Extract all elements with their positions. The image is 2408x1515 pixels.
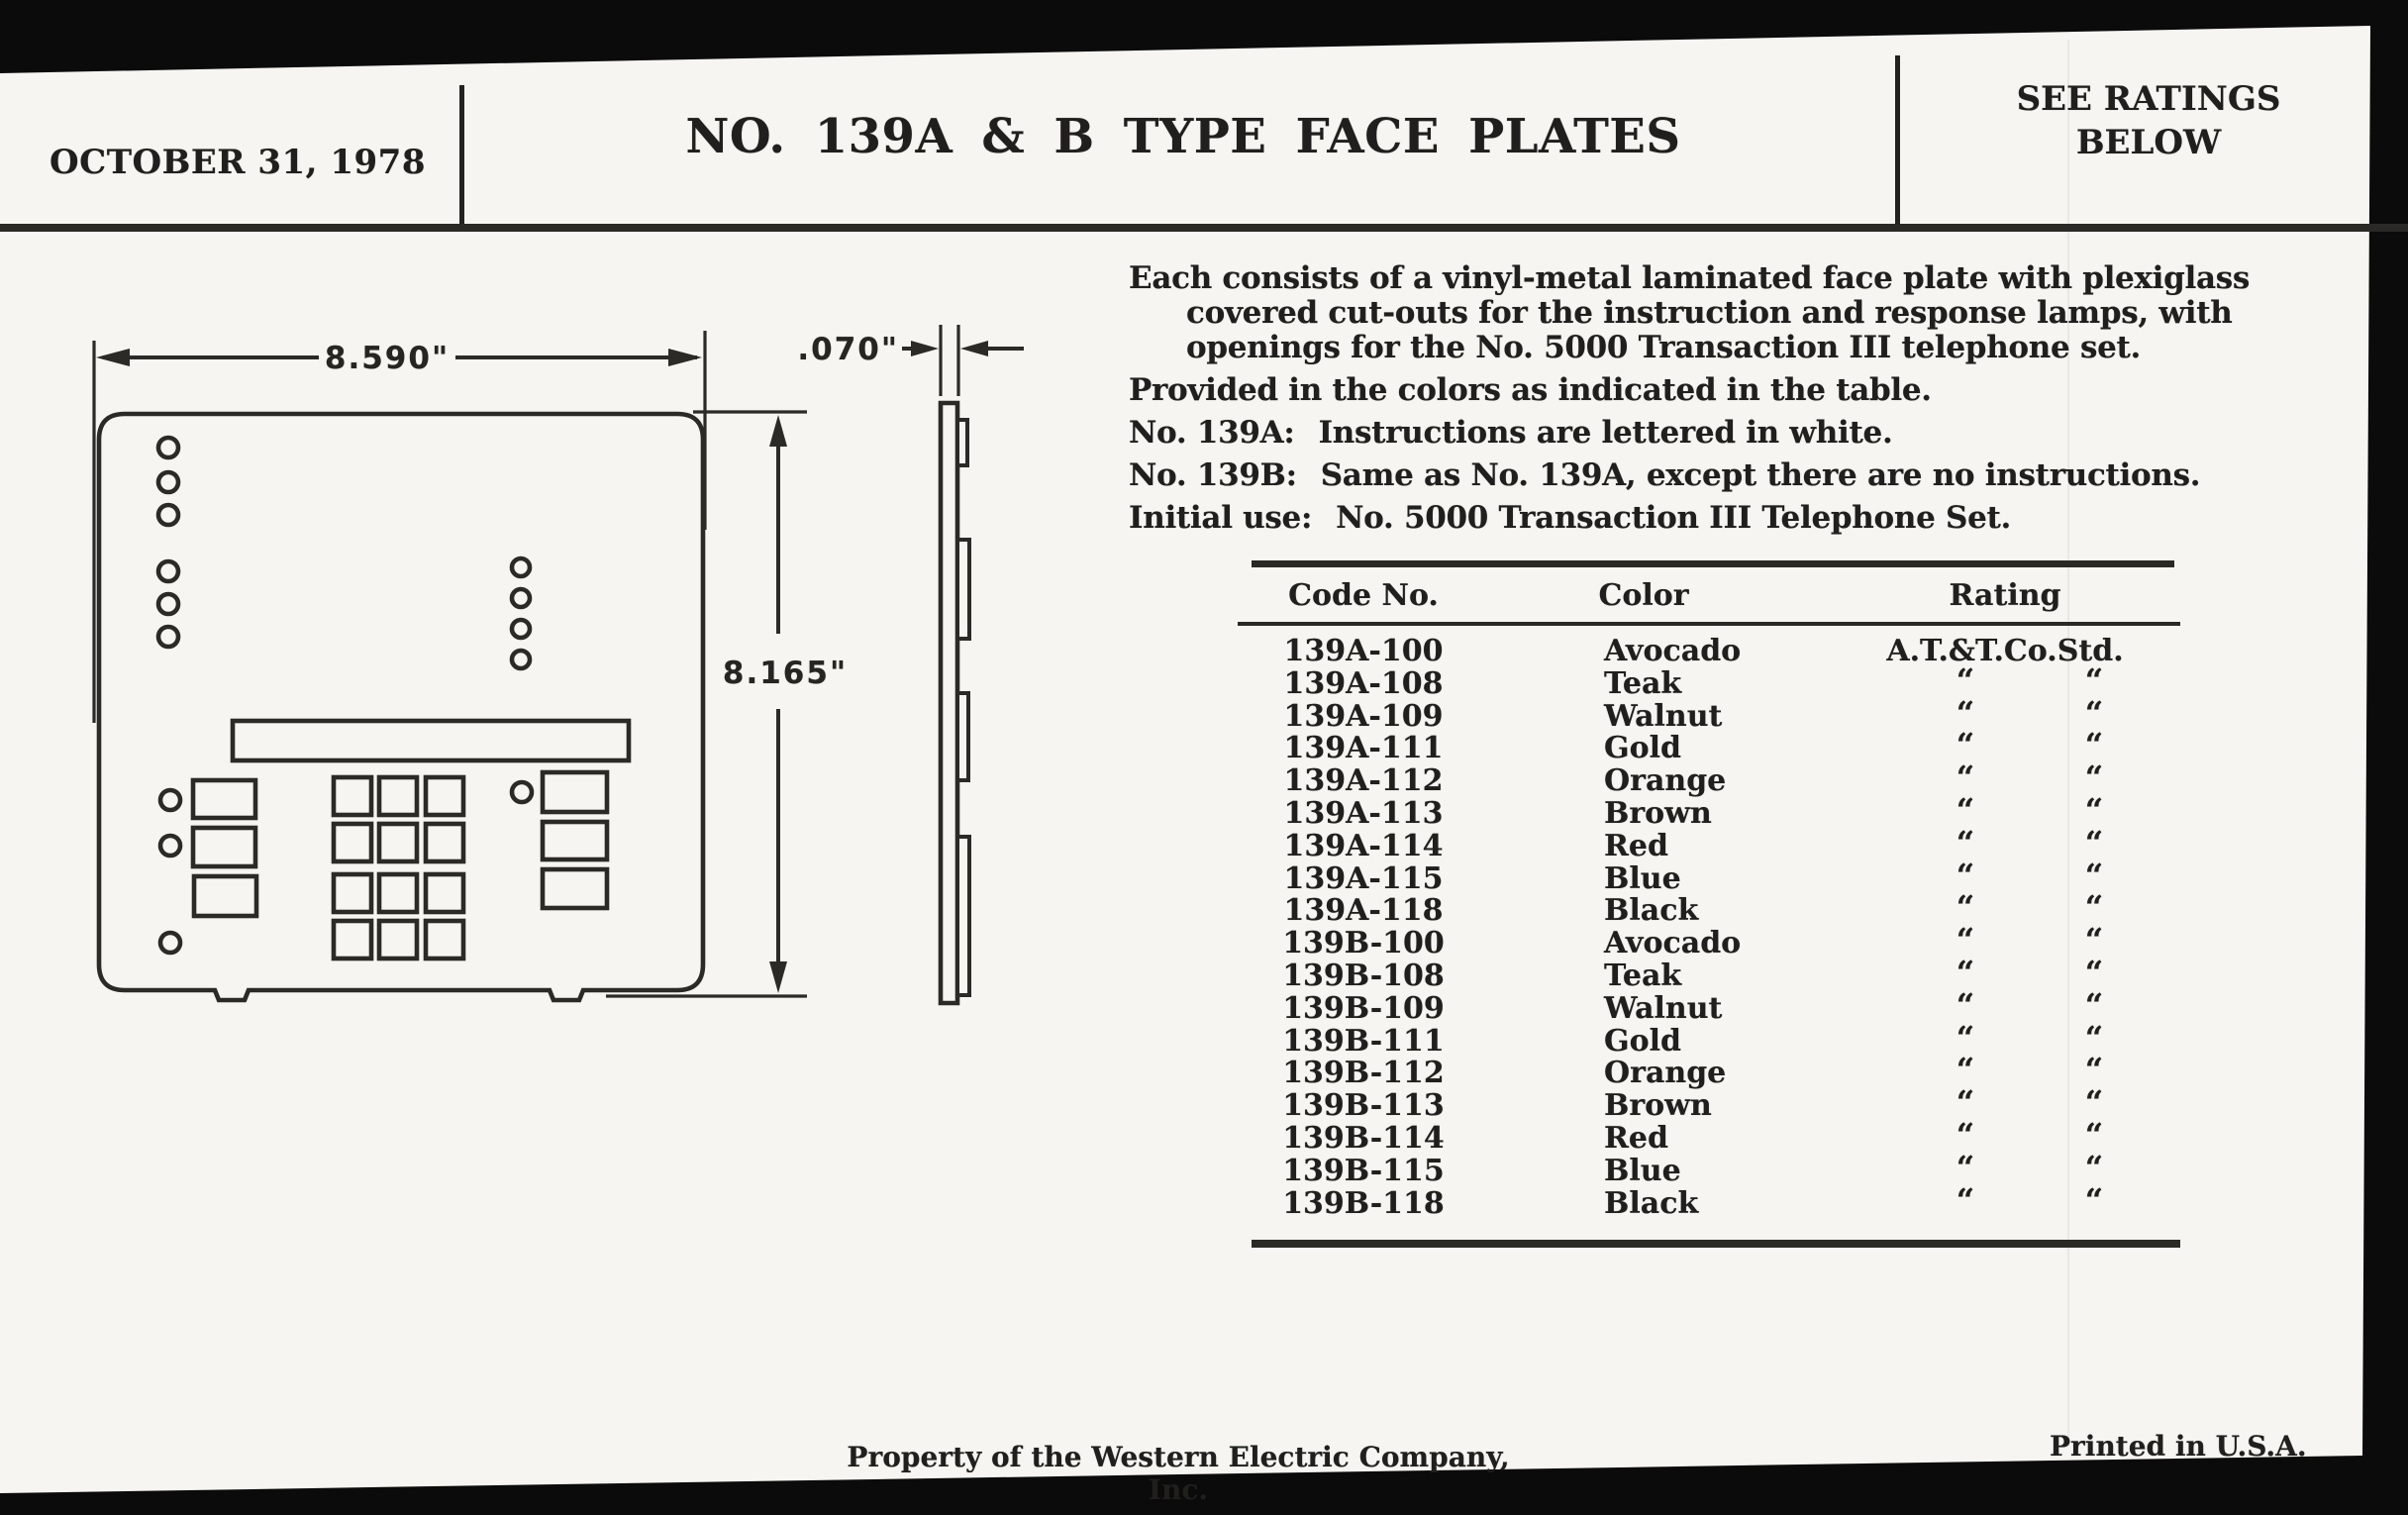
table-header-rule xyxy=(1238,622,2180,626)
instruction-window-slot xyxy=(233,721,629,760)
rating-ditto-mark: “ xyxy=(1946,957,1985,989)
rating-ditto-mark: “ xyxy=(1946,827,1985,859)
color-cell: Gold xyxy=(1604,1026,1681,1059)
color-cell: Blue xyxy=(1604,1156,1681,1188)
rating-ditto-mark: “ xyxy=(2074,924,2114,957)
header-divider-right xyxy=(1895,55,1900,226)
table-bottom-rule xyxy=(1252,1240,2180,1248)
rating-ditto-mark: “ xyxy=(1946,1184,1985,1217)
code-cell: 139B-115 xyxy=(1254,1156,1472,1188)
item-text: Same as No. 139A, except there are no in… xyxy=(1321,457,2201,493)
ratings-note: SEE RATINGS BELOW xyxy=(1941,77,2357,164)
color-cell: Blue xyxy=(1604,863,1681,896)
table-row: 139B-112Orange““ xyxy=(1238,1058,2188,1090)
description-item-initial-use: Initial use:No. 5000 Transaction III Tel… xyxy=(1129,501,2317,536)
rating-ditto-mark: “ xyxy=(2074,1119,2114,1152)
description-line: openings for the No. 5000 Transaction II… xyxy=(1129,331,2317,365)
color-cell: Avocado xyxy=(1604,636,1741,668)
column-header-code: Code No. xyxy=(1254,578,1472,613)
rating-ditto-mark: “ xyxy=(1946,761,1985,794)
rating-ditto-mark: “ xyxy=(2074,1022,2114,1055)
rating-ditto-mark: “ xyxy=(1946,794,1985,827)
table-row: 139A-100AvocadoA.T.&T.Co.Std. xyxy=(1238,636,2188,668)
code-cell: 139A-111 xyxy=(1254,733,1472,765)
footer-printed-in: Printed in U.S.A. xyxy=(2050,1430,2307,1463)
rating-ditto-mark: “ xyxy=(2074,729,2114,761)
rating-ditto-mark: “ xyxy=(2074,1086,2114,1119)
description: Each consists of a vinyl-metal laminated… xyxy=(1129,261,2317,536)
item-label: Initial use: xyxy=(1129,500,1312,536)
rating-ditto-mark: “ xyxy=(1946,924,1985,957)
table-row: 139A-109Walnut““ xyxy=(1238,701,2188,734)
code-cell: 139A-118 xyxy=(1254,895,1472,928)
description-item-139a: No. 139A:Instructions are lettered in wh… xyxy=(1129,416,2317,451)
height-dim-label: 8.165" xyxy=(723,656,848,691)
rating-ditto-mark: “ xyxy=(1946,1086,1985,1119)
table-row: 139A-112Orange““ xyxy=(1238,765,2188,798)
code-cell: 139B-114 xyxy=(1254,1123,1472,1156)
item-label: No. 139B: xyxy=(1129,457,1297,493)
rating-ditto-mark: “ xyxy=(2074,957,2114,989)
page-title: NO. 139A & B TYPE FACE PLATES xyxy=(495,109,1871,164)
description-colors-line: Provided in the colors as indicated in t… xyxy=(1129,373,2317,408)
code-cell: 139B-100 xyxy=(1254,928,1472,960)
table-row: 139A-113Brown““ xyxy=(1238,798,2188,831)
rating-ditto-mark: “ xyxy=(1946,729,1985,761)
width-dimension: 8.590" xyxy=(94,331,705,723)
description-line: Each consists of a vinyl-metal laminated… xyxy=(1129,261,2317,296)
color-cell: Teak xyxy=(1604,668,1681,701)
ratings-note-line2: BELOW xyxy=(1941,121,2357,164)
code-cell: 139B-111 xyxy=(1254,1026,1472,1059)
thickness-dimension: .070" xyxy=(797,325,1024,396)
color-cell: Gold xyxy=(1604,733,1681,765)
rating-ditto-mark: “ xyxy=(2074,697,2114,730)
rating-ditto-mark: “ xyxy=(1946,1119,1985,1152)
height-dimension: 8.165" xyxy=(606,412,848,996)
lamp-holes-right xyxy=(512,558,530,668)
table-row: 139B-114Red““ xyxy=(1238,1123,2188,1156)
code-cell: 139A-100 xyxy=(1254,636,1472,668)
color-cell: Black xyxy=(1604,895,1698,928)
rating-ditto-mark: “ xyxy=(1946,664,1985,697)
ratings-note-line1: SEE RATINGS xyxy=(1941,77,2357,121)
rating-ditto-mark: “ xyxy=(2074,891,2114,924)
column-header-color: Color xyxy=(1535,578,1753,613)
rating-ditto-mark: “ xyxy=(2074,989,2114,1022)
footer-property-notice: Property of the Western Electric Company… xyxy=(832,1441,1525,1506)
rating-ditto-mark: “ xyxy=(1946,697,1985,730)
color-cell: Avocado xyxy=(1604,928,1741,960)
code-cell: 139B-108 xyxy=(1254,960,1472,993)
rating-ditto-mark: “ xyxy=(1946,989,1985,1022)
side-profile-view xyxy=(941,403,969,1003)
color-cell: Red xyxy=(1604,1123,1668,1156)
rating-ditto-mark: “ xyxy=(2074,761,2114,794)
table-row: 139B-113Brown““ xyxy=(1238,1090,2188,1123)
code-cell: 139B-112 xyxy=(1254,1058,1472,1090)
table-row: 139A-111Gold““ xyxy=(1238,733,2188,765)
color-cell: Teak xyxy=(1604,960,1681,993)
color-cell: Walnut xyxy=(1604,993,1722,1026)
rating-ditto-mark: “ xyxy=(2074,827,2114,859)
faceplate-diagram: 8.590" xyxy=(50,317,1050,1040)
rating-ditto-mark: “ xyxy=(1946,1054,1985,1086)
left-button-cutouts xyxy=(160,780,256,953)
page-date: OCTOBER 31, 1978 xyxy=(40,143,436,182)
code-cell: 139A-109 xyxy=(1254,701,1472,734)
color-cell: Walnut xyxy=(1604,701,1722,734)
header-divider-left xyxy=(459,85,464,232)
table-row: 139B-115Blue““ xyxy=(1238,1156,2188,1188)
description-item-139b: No. 139B:Same as No. 139A, except there … xyxy=(1129,458,2317,493)
rating-ditto-mark: “ xyxy=(1946,1152,1985,1184)
code-cell: 139A-113 xyxy=(1254,798,1472,831)
rating-ditto-mark: “ xyxy=(2074,794,2114,827)
lamp-holes-left xyxy=(158,438,178,647)
color-cell: Orange xyxy=(1604,1058,1726,1090)
color-cell: Brown xyxy=(1604,1090,1712,1123)
rating-ditto-mark: “ xyxy=(2074,1184,2114,1217)
table-body: 139A-100AvocadoA.T.&T.Co.Std.139A-108Tea… xyxy=(1238,636,2188,1220)
table-row: 139A-115Blue““ xyxy=(1238,863,2188,896)
code-cell: 139A-108 xyxy=(1254,668,1472,701)
item-label: No. 139A: xyxy=(1129,415,1295,451)
color-cell: Orange xyxy=(1604,765,1726,798)
width-dim-label: 8.590" xyxy=(325,341,450,376)
code-cell: 139B-118 xyxy=(1254,1188,1472,1221)
table-row: 139B-100Avocado““ xyxy=(1238,928,2188,960)
table-top-rule xyxy=(1252,560,2174,567)
description-line: covered cut-outs for the instruction and… xyxy=(1129,296,2317,331)
document-page: OCTOBER 31, 1978 NO. 139A & B TYPE FACE … xyxy=(0,0,2408,1515)
code-cell: 139A-112 xyxy=(1254,765,1472,798)
code-cell: 139A-114 xyxy=(1254,831,1472,863)
table-row: 139A-118Black““ xyxy=(1238,895,2188,928)
rating-ditto-mark: “ xyxy=(1946,891,1985,924)
table-row: 139B-111Gold““ xyxy=(1238,1026,2188,1059)
color-cell: Black xyxy=(1604,1188,1698,1221)
rating-ditto-mark: “ xyxy=(2074,1152,2114,1184)
code-cell: 139A-115 xyxy=(1254,863,1472,896)
color-cell: Red xyxy=(1604,831,1668,863)
item-text: No. 5000 Transaction III Telephone Set. xyxy=(1336,500,2011,536)
table-header-row: Code No. Color Rating xyxy=(1238,578,2188,618)
keypad-cutout-grid xyxy=(334,777,463,959)
rating-ditto-mark: “ xyxy=(2074,859,2114,892)
color-cell: Brown xyxy=(1604,798,1712,831)
rating-ditto-mark: “ xyxy=(2074,1054,2114,1086)
rating-ditto-mark: “ xyxy=(1946,1022,1985,1055)
masthead-rule xyxy=(0,224,2408,232)
right-button-cutouts xyxy=(512,772,607,908)
code-cell: 139B-113 xyxy=(1254,1090,1472,1123)
table-row: 139A-108Teak““ xyxy=(1238,668,2188,701)
thickness-dim-label: .070" xyxy=(797,332,899,367)
table-row: 139B-118Black““ xyxy=(1238,1188,2188,1221)
table-row: 139A-114Red““ xyxy=(1238,831,2188,863)
item-text: Instructions are lettered in white. xyxy=(1319,415,1893,451)
ratings-table: Code No. Color Rating 139A-100AvocadoA.T… xyxy=(1238,555,2188,1267)
column-header-rating: Rating xyxy=(1881,578,2129,613)
table-row: 139B-108Teak““ xyxy=(1238,960,2188,993)
rating-ditto-mark: “ xyxy=(2074,664,2114,697)
table-row: 139B-109Walnut““ xyxy=(1238,993,2188,1026)
code-cell: 139B-109 xyxy=(1254,993,1472,1026)
rating-ditto-mark: “ xyxy=(1946,859,1985,892)
